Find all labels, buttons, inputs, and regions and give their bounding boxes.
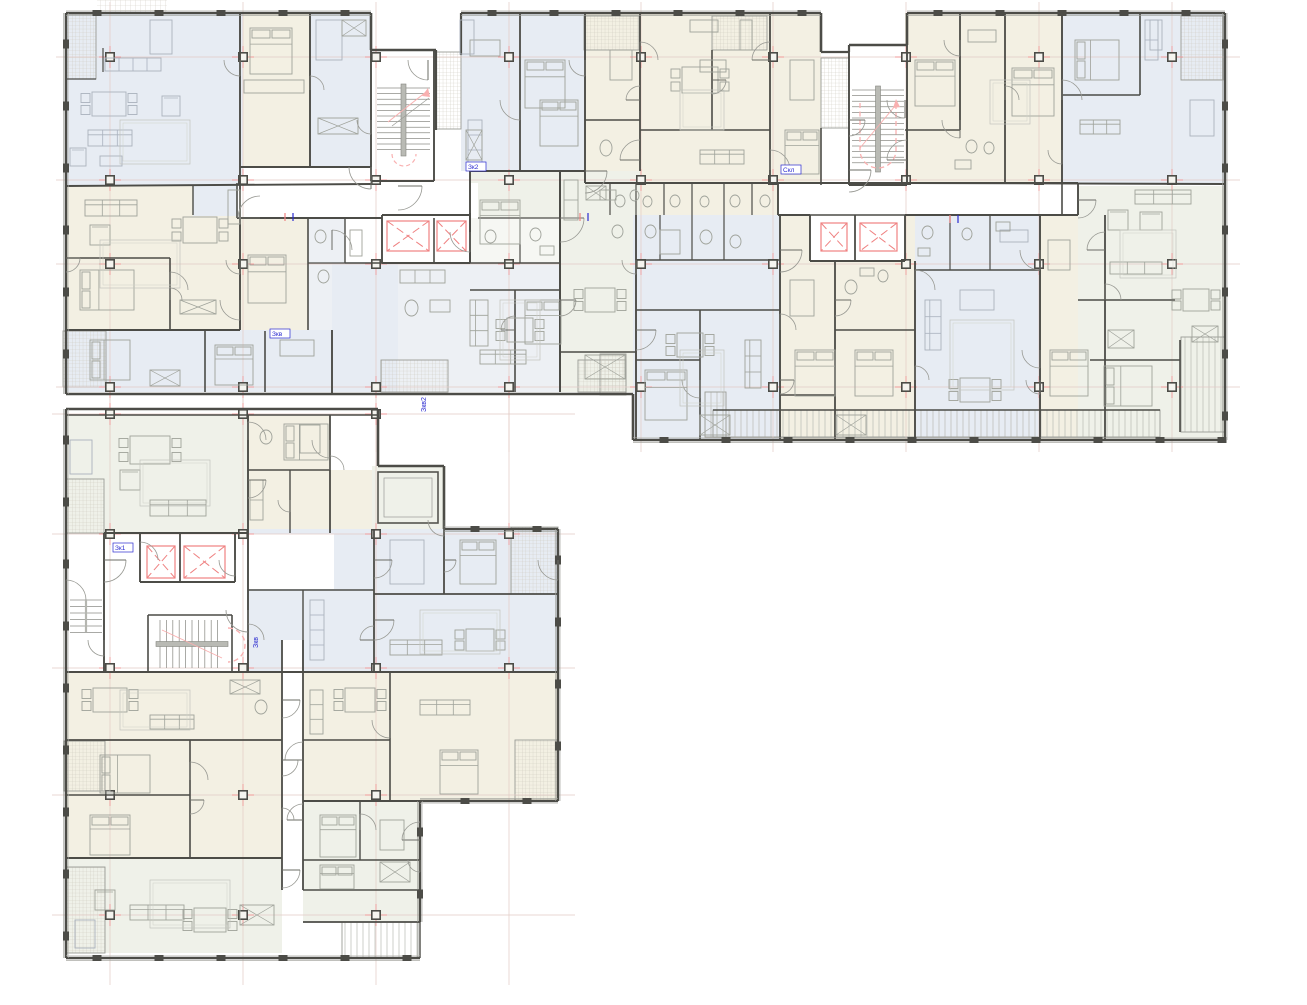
svg-text:Зкв2: Зкв2 [421, 397, 428, 412]
svg-text:Скл: Скл [783, 167, 795, 174]
svg-text:Зкв: Зкв [272, 331, 283, 338]
svg-text:Зкв: Зкв [253, 637, 260, 648]
svg-text:Зк1: Зк1 [115, 545, 126, 552]
svg-text:Зк2: Зк2 [468, 164, 479, 171]
